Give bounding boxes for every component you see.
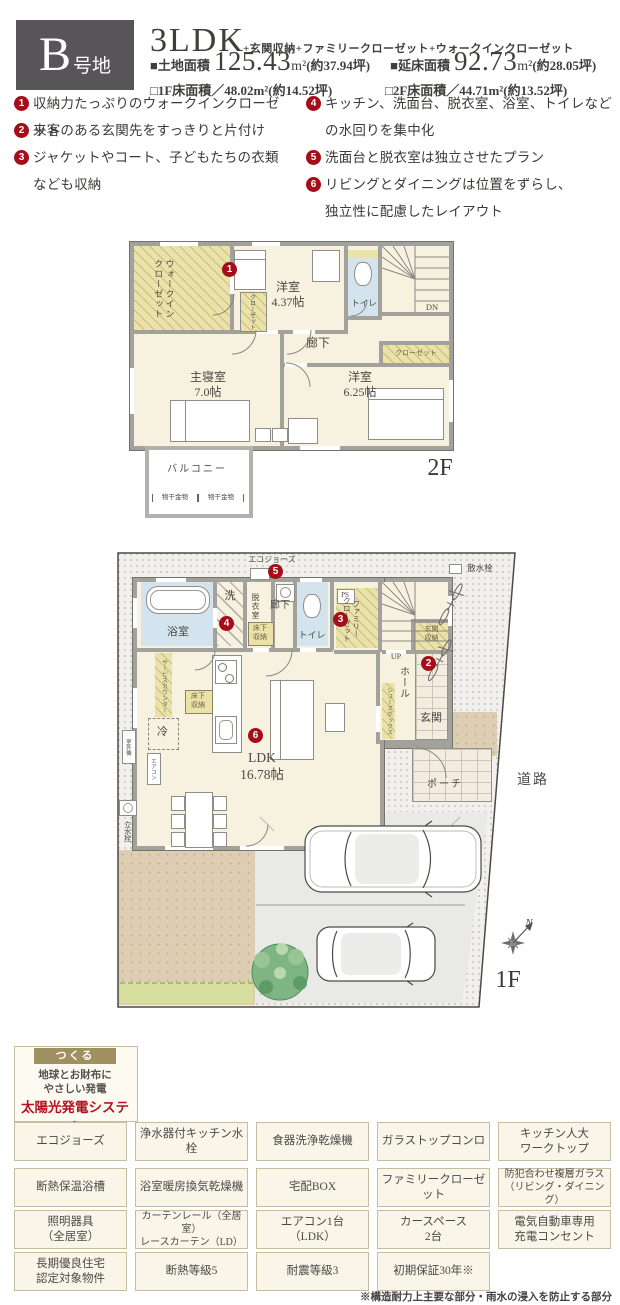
porch-label: ポーチ	[420, 779, 470, 792]
amenity-cell: 断熱等級5	[135, 1252, 248, 1291]
floor-1f-label: 1F	[486, 965, 530, 995]
floor-2f-label: 2F	[420, 453, 460, 483]
dressing-label: 脱衣室	[250, 586, 260, 626]
amenity-cell: 宅配BOX	[256, 1168, 369, 1207]
door-gap	[376, 706, 380, 732]
furniture-desk	[288, 418, 318, 444]
feature-5-number: 5	[306, 150, 321, 165]
laundry-label: 洗	[219, 590, 241, 604]
feature-3-text: ジャケットやコート、子どもたちの衣類なども収納	[33, 144, 283, 198]
amenity-cell: 浴室暖房換気乾燥機	[135, 1168, 248, 1207]
floor-area-label: ■延床面積	[390, 58, 450, 73]
total-floor-area: ■延床面積 92.73m²(約28.05坪)	[390, 46, 596, 77]
window-slot	[300, 578, 322, 582]
stove-icon	[215, 660, 237, 684]
sprinkler-icon	[449, 564, 462, 574]
amenity-cell: ファミリークローゼット	[377, 1168, 490, 1207]
chair	[171, 814, 185, 829]
wall-segment	[344, 246, 348, 334]
hanger-label: 物干金物	[198, 494, 244, 502]
feature-badge-5: 5	[268, 564, 283, 579]
door-gap	[213, 608, 217, 628]
amenity-cell: 照明器具 （全居室）	[14, 1210, 127, 1249]
amenity-cell: 電気自動車専用 充電コンセント	[498, 1210, 611, 1249]
amenity-cell: 断熱保温浴槽	[14, 1168, 127, 1207]
ottoman-icon	[325, 703, 345, 732]
amenity-cell: 食器洗浄乾燥機	[256, 1122, 369, 1161]
wall-segment	[243, 582, 247, 648]
chair	[213, 796, 227, 811]
door-gap	[293, 330, 315, 334]
amenity-cell: エアコン1台 （LDK）	[256, 1210, 369, 1249]
compass-n-label: N	[519, 917, 539, 931]
amenity-cell: 長期優良住宅 認定対象物件	[14, 1252, 127, 1291]
window-slot	[160, 242, 198, 246]
tap-label: 立水栓	[123, 816, 132, 846]
furniture-dresser	[255, 428, 271, 442]
feature-2-text: 来客のある玄関先をすっきりと片付け	[33, 117, 288, 144]
furniture-dresser	[272, 428, 288, 442]
terrace-door-gap	[240, 846, 284, 850]
master-bedroom-label: 主寝室 7.0帖	[178, 370, 238, 400]
bath-label: 浴室	[155, 626, 201, 640]
solar-line2: やさしい発電	[15, 1081, 135, 1096]
wall-segment	[383, 363, 449, 367]
window-slot	[449, 380, 453, 422]
flyer-page: B 号地 3LDK +玄関収納+ファミリークローゼット+ウォークインクローゼット…	[0, 0, 620, 1305]
amenity-cell: 浄水器付キッチン水栓	[135, 1122, 248, 1161]
amenity-cell: カーテンレール（全居室） レースカーテン（LD）	[135, 1210, 248, 1249]
service-counter-label: サービスカウンター	[159, 656, 167, 716]
corridor-1f-label: 廊下	[262, 600, 298, 613]
amenity-cell: エコジョーズ	[14, 1122, 127, 1161]
balcony-label: バルコニー	[155, 464, 239, 477]
fridge-label: 冷	[150, 726, 175, 740]
feature-6-text: リビングとダイニングは位置をずらし、独立性に配慮したレイアウト	[325, 171, 575, 225]
window-slot	[448, 596, 452, 626]
corridor-2f-label: 廊下	[296, 336, 340, 351]
room-b-label: 洋室 6.25帖	[330, 370, 390, 400]
feature-badge-1: 1	[222, 262, 237, 277]
underfloor-label-2: 床下 収納	[186, 692, 210, 710]
toilet-icon	[354, 262, 372, 286]
ldk-label: LDK 16.78帖	[230, 750, 294, 784]
walkin-closet-label: ウォークイン クローゼット	[152, 252, 175, 326]
door-gap	[300, 648, 316, 652]
kitchen-sink-icon	[215, 716, 237, 744]
feature-2-number: 2	[14, 123, 29, 138]
aircon-label: エアコン	[149, 756, 156, 782]
amenity-cell: 防犯合わせ複層ガラス （リビング・ダイニング）	[498, 1168, 611, 1207]
feature-6-number: 6	[306, 177, 321, 192]
toilet-icon	[303, 594, 321, 618]
window-slot	[156, 578, 186, 582]
solar-ribbon: つくる	[34, 1048, 116, 1064]
feature-badge-6: 6	[248, 728, 263, 743]
plot-badge-letter: B	[39, 31, 71, 79]
floor-area-unit: m²	[517, 59, 532, 74]
window-slot	[252, 242, 280, 246]
chair	[213, 814, 227, 829]
toilet-2f-label: トイレ	[346, 298, 382, 309]
feature-1-number: 1	[14, 96, 29, 111]
grass-strip	[120, 982, 253, 1003]
land-area-value: 125.43	[214, 46, 291, 76]
balcony	[145, 446, 253, 518]
dining-table	[185, 792, 213, 848]
plot-badge-suffix: 号地	[73, 51, 111, 78]
door-gap	[285, 363, 307, 367]
furniture-bed-master	[170, 400, 250, 442]
solar-line1: 地球とお財布に	[15, 1067, 135, 1082]
land-area-unit: m²	[291, 59, 306, 74]
feature-badge-2: 2	[421, 656, 436, 671]
door-gap	[253, 648, 269, 652]
feature-3-number: 3	[14, 150, 29, 165]
structure-footnote: ※構造耐力上主要な部分・雨水の浸入を防止する部分	[170, 1289, 612, 1304]
amenity-cell: 耐震等級3	[256, 1252, 369, 1291]
wall-segment	[334, 650, 380, 654]
entrance-storage-label: 玄関 収納	[417, 625, 446, 643]
amenity-cell: カースペース 2台	[377, 1210, 490, 1249]
eco-water-heater-box	[250, 568, 270, 580]
toilet-counter	[348, 250, 378, 258]
wall-segment	[378, 582, 382, 652]
sofa-icon	[270, 680, 314, 760]
chair	[171, 832, 185, 847]
amenity-cell: ガラストップコンロ	[377, 1122, 490, 1161]
feature-5-text: 洗面台と脱衣室は独立させたプラン	[325, 144, 617, 171]
floor-area-tsubo: (約28.05坪)	[532, 58, 596, 73]
amenity-cell: キッチン人大 ワークトップ	[498, 1122, 611, 1161]
porch	[412, 748, 492, 802]
window-slot	[300, 446, 340, 450]
feature-badge-4: 4	[219, 616, 234, 631]
chair	[171, 796, 185, 811]
shoe-box-label: シューズボックス	[384, 684, 392, 738]
land-area: ■土地面積 125.43m²(約37.94坪)	[150, 46, 370, 77]
bathtub-icon	[146, 586, 210, 614]
road-label: 道路	[508, 772, 558, 790]
wall-segment	[348, 316, 382, 320]
entrance-label: 玄関	[413, 712, 449, 726]
underfloor-label: 床下 収納	[249, 624, 271, 642]
feature-4-number: 4	[306, 96, 321, 111]
outdoor-unit-label: 室外機	[124, 733, 131, 761]
room-walkin-closet	[134, 246, 230, 330]
amenity-cell: 初期保証30年※	[377, 1252, 490, 1291]
chair	[213, 832, 227, 847]
land-area-tsubo: (約37.94坪)	[306, 58, 370, 73]
closet-band-label: クローゼット	[383, 349, 449, 358]
stairs-dn-label: DN	[418, 302, 446, 313]
window-slot	[133, 688, 137, 728]
window-slot	[133, 598, 137, 628]
feature-badge-3: 3	[333, 612, 348, 627]
room-a-label: 洋室 4.37帖	[258, 280, 318, 310]
plot-badge: B 号地	[16, 20, 134, 90]
sprinkler-label: 散水栓	[460, 563, 500, 574]
tap-box	[119, 800, 137, 816]
land-area-label: ■土地面積	[150, 58, 210, 73]
toilet-1f-label: トイレ	[294, 630, 330, 641]
hall-label: ホール	[396, 660, 409, 704]
furniture-desk	[312, 250, 340, 282]
small-closet-label: クローゼット	[247, 294, 255, 330]
hanger-label: 物干金物	[152, 494, 198, 502]
feature-4-text: キッチン、洗面台、脱衣室、浴室、トイレなどの水回りを集中化	[325, 90, 617, 144]
area-line: ■土地面積 125.43m²(約37.94坪) ■延床面積 92.73m²(約2…	[150, 46, 620, 77]
floor-area-value: 92.73	[454, 46, 517, 76]
window-slot	[130, 368, 134, 414]
